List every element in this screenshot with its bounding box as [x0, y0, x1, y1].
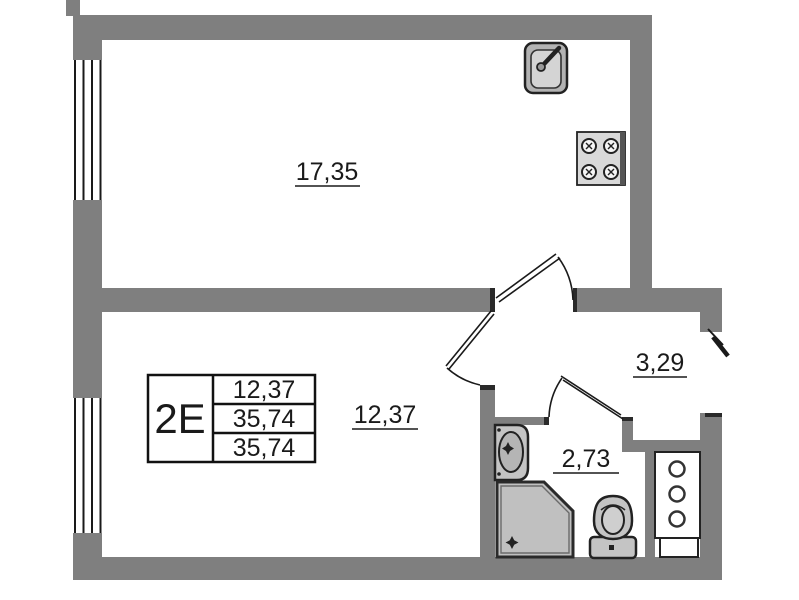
wall-shaft-left [645, 452, 655, 557]
unit-type-label: 2E [154, 395, 205, 442]
kitchen-sink-icon [525, 43, 567, 93]
room-label-hallway: 3,29 [636, 349, 685, 377]
wall-left-corner-top [73, 38, 102, 62]
area-table: 2E 12,37 35,74 35,74 [148, 375, 315, 462]
wall-left-pier [73, 200, 102, 398]
floor-plan-drawing: 17,35 12,37 3,29 2,73 2E 12,37 35,74 35,… [0, 0, 799, 600]
wall-bottom [73, 557, 722, 580]
unit-stat-total-area: 35,74 [233, 405, 296, 433]
stove-icon [577, 132, 625, 185]
jamb-door2-bottom [480, 385, 495, 390]
toilet-icon [590, 496, 636, 558]
wall-hallway-bottom [622, 440, 702, 452]
wall-entry-block-top [700, 310, 722, 332]
jamb-door1-left [490, 288, 495, 312]
wall-room-bathroom [480, 385, 495, 557]
washbasin-icon [495, 425, 528, 480]
wall-divider-right [573, 288, 722, 312]
window-lower-room [73, 398, 102, 533]
window-upper-room [73, 60, 102, 200]
jamb-bath-door-right [622, 417, 633, 421]
ventilation-shaft [655, 452, 700, 557]
unit-stat-full-area: 35,74 [233, 434, 296, 462]
room-label-living: 17,35 [296, 158, 359, 186]
jamb-bath-door-left [544, 417, 549, 425]
door-bathroom [549, 376, 623, 419]
unit-stat-room-area: 12,37 [233, 376, 296, 404]
wall-stub-top-left [66, 0, 80, 16]
walls [66, 0, 722, 580]
wall-top [73, 15, 652, 40]
wall-divider-left [102, 288, 495, 312]
door-living-room [496, 254, 573, 302]
room-label-bathroom: 2,73 [562, 445, 611, 473]
wall-right-lower [700, 413, 722, 580]
wall-right-upper-room [630, 15, 652, 312]
floor-plan: 17,35 12,37 3,29 2,73 2E 12,37 35,74 35,… [0, 0, 799, 600]
jamb-entry-bottom [705, 413, 722, 417]
room-label-bedroom: 12,37 [354, 401, 417, 429]
door-entry [708, 329, 728, 356]
jamb-door1-right [573, 288, 577, 312]
shower-icon [497, 482, 573, 557]
door-bedroom [446, 311, 494, 385]
